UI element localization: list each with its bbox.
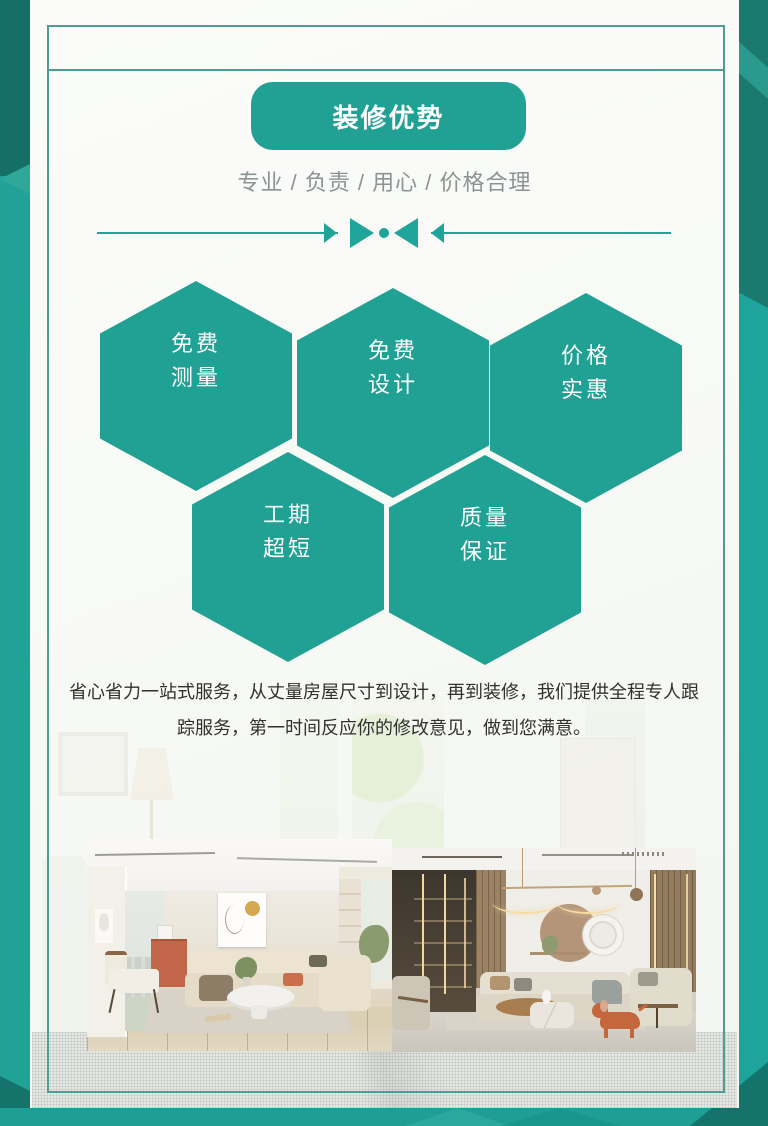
frame-top-rule (47, 69, 725, 71)
hexagon-label-line1: 质量 (389, 501, 581, 535)
hexagon-label-line1: 价格 (490, 339, 682, 373)
hexagon-label-line2: 测量 (100, 361, 292, 395)
hexagon-label-line2: 超短 (192, 532, 384, 566)
hexagon-label-line1: 工期 (192, 498, 384, 532)
hexagon-label-line1: 免费 (297, 334, 489, 368)
hexagon-label-line1: 免费 (100, 327, 292, 361)
page-root: 装修优势 专业 / 负责 / 用心 / 价格合理 免费 测量 免费 设计 价格 … (0, 0, 768, 1126)
hexagon-label-line2: 保证 (389, 535, 581, 569)
divider-small-right-arrow-icon (324, 223, 337, 243)
divider-line-right (431, 232, 671, 234)
hexagon-label-line2: 实惠 (490, 373, 682, 407)
title-badge: 装修优势 (251, 82, 526, 150)
divider-big-left-arrow-icon (394, 218, 418, 248)
hexagon-label-line2: 设计 (297, 368, 489, 402)
divider-big-right-arrow-icon (350, 218, 374, 248)
content-card: 装修优势 专业 / 负责 / 用心 / 价格合理 免费 测量 免费 设计 价格 … (30, 0, 739, 1108)
decor-left-dark-shape (0, 0, 30, 176)
divider-line-left (97, 232, 338, 234)
service-paragraph: 省心省力一站式服务，从丈量房屋尺寸到设计，再到装修，我们提供全程专人跟踪服务，第… (64, 674, 704, 746)
title-badge-label: 装修优势 (332, 98, 444, 135)
divider-dot-icon (379, 228, 389, 238)
decor-bottom-strip (0, 1108, 768, 1126)
subtitle-text: 专业 / 负责 / 用心 / 价格合理 (30, 165, 739, 197)
